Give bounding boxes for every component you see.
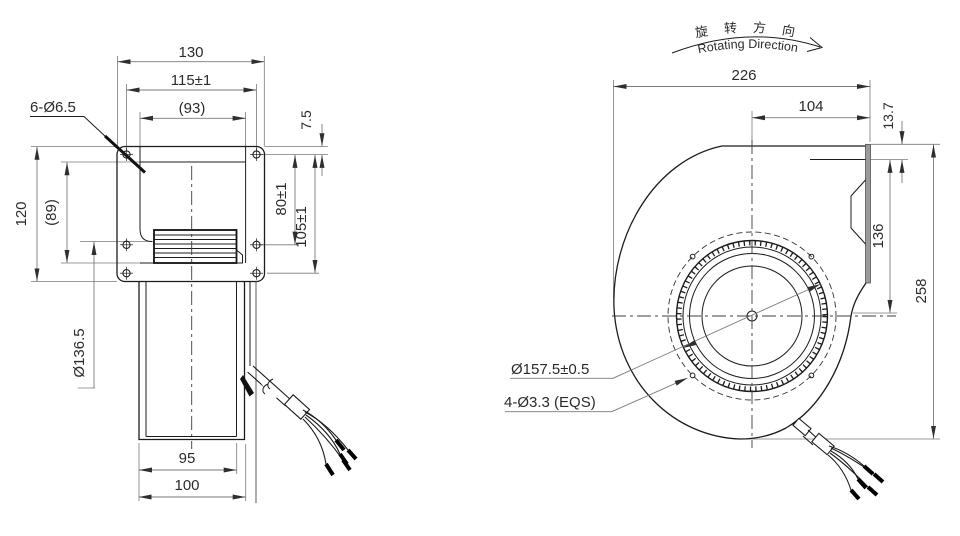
front-view: 130 115±1 (93) 6-Ø6.5 120 (89) Ø136.5 7.…: [13, 44, 356, 503]
volute-housing: [614, 144, 871, 439]
side-extension-lines: [614, 80, 941, 439]
impeller-bolt-hole: [690, 254, 695, 259]
dim-side-overall-height: 258: [913, 278, 930, 303]
rotation-label-en: Rotating Direction: [696, 37, 799, 56]
front-power-cable: [240, 366, 356, 475]
outlet-flange-plate: [866, 144, 871, 283]
front-hole-callout-leader: [30, 117, 145, 173]
dim-hole-spacing-80: 80±1: [273, 182, 290, 215]
front-dimension-lines: [37, 62, 322, 497]
mounting-hole: [120, 238, 133, 251]
side-dimension-lines: [614, 87, 934, 439]
dim-overall-width: 130: [178, 44, 203, 61]
impeller-bolt-hole: [809, 373, 814, 378]
side-power-cable: [793, 418, 883, 499]
dim-base-width: 100: [174, 477, 199, 494]
mounting-hole: [250, 267, 263, 280]
dim-hole-spacing-105: 105±1: [293, 206, 310, 248]
side-view: 旋 转 方 向 Rotating Direction: [504, 20, 940, 499]
mounting-hole: [250, 148, 263, 161]
front-extension-lines: [31, 56, 328, 501]
mounting-hole: [120, 267, 133, 280]
rotation-direction: 旋 转 方 向 Rotating Direction: [672, 20, 822, 56]
dim-side-overall-width: 226: [731, 67, 756, 84]
side-leaders: [505, 282, 821, 412]
blower-dimension-drawing: 130 115±1 (93) 6-Ø6.5 120 (89) Ø136.5 7.…: [0, 0, 960, 536]
dim-impeller-diameter-front: Ø136.5: [71, 328, 88, 377]
front-impeller-grille: [154, 230, 243, 263]
rotation-arrow-head: [807, 38, 822, 52]
impeller-bolt-hole: [690, 373, 695, 378]
dim-outlet-height: 136: [870, 223, 887, 248]
dim-impeller-mount-holes: 4-Ø3.3 (EQS): [504, 394, 596, 411]
outlet-port-profile: [851, 180, 866, 244]
drawing-canvas: 130 115±1 (93) 6-Ø6.5 120 (89) Ø136.5 7.…: [0, 0, 960, 536]
dim-motor-width: 95: [179, 450, 196, 467]
dim-overall-height: 120: [13, 201, 30, 226]
dim-mount-holes: 6-Ø6.5: [30, 99, 76, 116]
dim-inlet-height: (89): [43, 199, 60, 226]
dim-impeller-diameter-side: Ø157.5±0.5: [511, 361, 589, 378]
front-dimension-labels: 130 115±1 (93) 6-Ø6.5 120 (89) Ø136.5 7.…: [13, 44, 314, 494]
dim-inlet-width: (93): [179, 100, 206, 117]
mounting-hole: [250, 238, 263, 251]
dim-outlet-lip-offset: 13.7: [880, 102, 896, 129]
dim-edge-to-hole: 7.5: [298, 110, 314, 130]
dim-center-to-outlet: 104: [798, 98, 823, 115]
dim-hole-spacing-h: 115±1: [171, 72, 212, 89]
